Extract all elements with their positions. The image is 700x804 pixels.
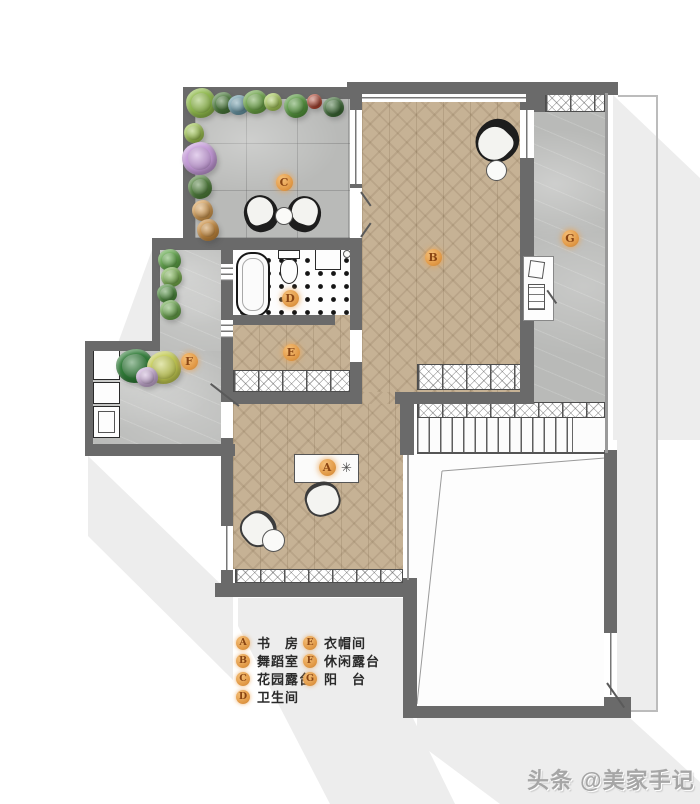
- wall: [534, 90, 545, 112]
- room-marker-c: C: [276, 174, 293, 191]
- room-marker-g: G: [562, 230, 579, 247]
- floor-plan-canvas: ✳ A B C D E F G A 书 房 B 舞蹈室: [0, 0, 700, 804]
- wall: [400, 392, 414, 455]
- toilet-bowl: [280, 259, 298, 284]
- legend-item: G 阳 台: [303, 669, 366, 688]
- plant-icon: [136, 367, 158, 387]
- round-table: [275, 207, 293, 225]
- legend-item: C 花园露台: [236, 669, 313, 688]
- sloped-roof-lines: [409, 455, 605, 706]
- void-edge-line: [407, 455, 409, 580]
- legend-marker-c: C: [236, 672, 250, 686]
- room-marker-e: E: [283, 344, 300, 361]
- wall: [230, 392, 362, 404]
- room-marker-b: B: [425, 249, 442, 266]
- watermark: 头条 @美家手记: [527, 763, 695, 795]
- sink: [315, 248, 341, 270]
- window: [520, 110, 534, 158]
- legend-label: 阳 台: [324, 669, 366, 688]
- window: [350, 110, 362, 184]
- legend-marker-b: B: [236, 654, 250, 668]
- void-floor: [409, 455, 605, 706]
- legend-label: 衣帽间: [324, 633, 366, 652]
- wall: [403, 706, 631, 718]
- window: [362, 94, 526, 102]
- legend-label: 书 房: [257, 633, 299, 652]
- legend-item: A 书 房: [236, 633, 299, 652]
- balcony-edge-line: [605, 93, 608, 453]
- round-table: [486, 160, 507, 181]
- legend-marker-e: E: [303, 636, 317, 650]
- wall: [233, 315, 335, 325]
- legend-label: 休闲露台: [324, 651, 380, 670]
- wall: [395, 392, 532, 404]
- window: [221, 320, 233, 338]
- plant-icon: [284, 94, 308, 118]
- toilet-tank: [278, 250, 300, 259]
- stair-sill-hatch: [417, 402, 605, 418]
- wall: [604, 450, 617, 635]
- room-marker-d: D: [282, 290, 299, 307]
- folded-item: [528, 260, 545, 279]
- legend-marker-f: F: [303, 654, 317, 668]
- kitchen-counter: [93, 382, 120, 404]
- roof-edge-line: [618, 95, 658, 97]
- stair-landing: [572, 418, 605, 452]
- plant-icon: [160, 300, 181, 320]
- plant-icon: [197, 219, 219, 241]
- legend-label: 舞蹈室: [257, 651, 299, 670]
- wardrobe-hatch-b: [417, 364, 523, 390]
- legend-marker-g: G: [303, 672, 317, 686]
- wall: [85, 341, 93, 456]
- plant-icon: [184, 123, 204, 143]
- legend: A 书 房 B 舞蹈室 C 花园露台 D 卫生间 E 衣帽间 F 休闲露台 G …: [236, 630, 426, 710]
- legend-marker-d: D: [236, 690, 250, 704]
- legend-item: F 休闲露台: [303, 651, 380, 670]
- legend-marker-a: A: [236, 636, 250, 650]
- window-sill-hatch-a: [235, 569, 403, 583]
- legend-item: E 衣帽间: [303, 633, 366, 652]
- plant-icon: [192, 200, 213, 221]
- balcony-sill-hatch: [545, 92, 605, 112]
- wall: [215, 583, 415, 597]
- door-opening: [350, 188, 362, 238]
- wall: [85, 341, 160, 351]
- counter-sink: [98, 411, 115, 433]
- wardrobe-hatch-e: [233, 370, 350, 392]
- roof-edge-line: [656, 95, 658, 712]
- legend-label: 卫生间: [257, 687, 299, 706]
- room-marker-f: F: [181, 353, 198, 370]
- desk-plant-icon: ✳: [341, 461, 352, 474]
- legend-item: D 卫生间: [236, 687, 299, 706]
- room-marker-a: A: [319, 459, 336, 476]
- balcony-chair: [528, 284, 545, 310]
- legend-item: B 舞蹈室: [236, 651, 299, 670]
- wall: [152, 238, 362, 250]
- side-table: [262, 529, 285, 552]
- wall: [85, 444, 235, 456]
- plant-icon: [264, 93, 282, 111]
- plant-icon: [323, 97, 344, 117]
- door-opening: [350, 330, 362, 362]
- plant-icon: [188, 175, 212, 199]
- window: [221, 526, 233, 570]
- stairs: [417, 418, 572, 452]
- bathtub: [236, 252, 270, 317]
- stair-edge-line: [417, 452, 605, 454]
- plant-icon: [307, 94, 322, 109]
- plant-icon: [182, 142, 217, 175]
- door-opening: [221, 402, 233, 438]
- window: [221, 264, 233, 281]
- doorway-floor-patch: [362, 392, 395, 404]
